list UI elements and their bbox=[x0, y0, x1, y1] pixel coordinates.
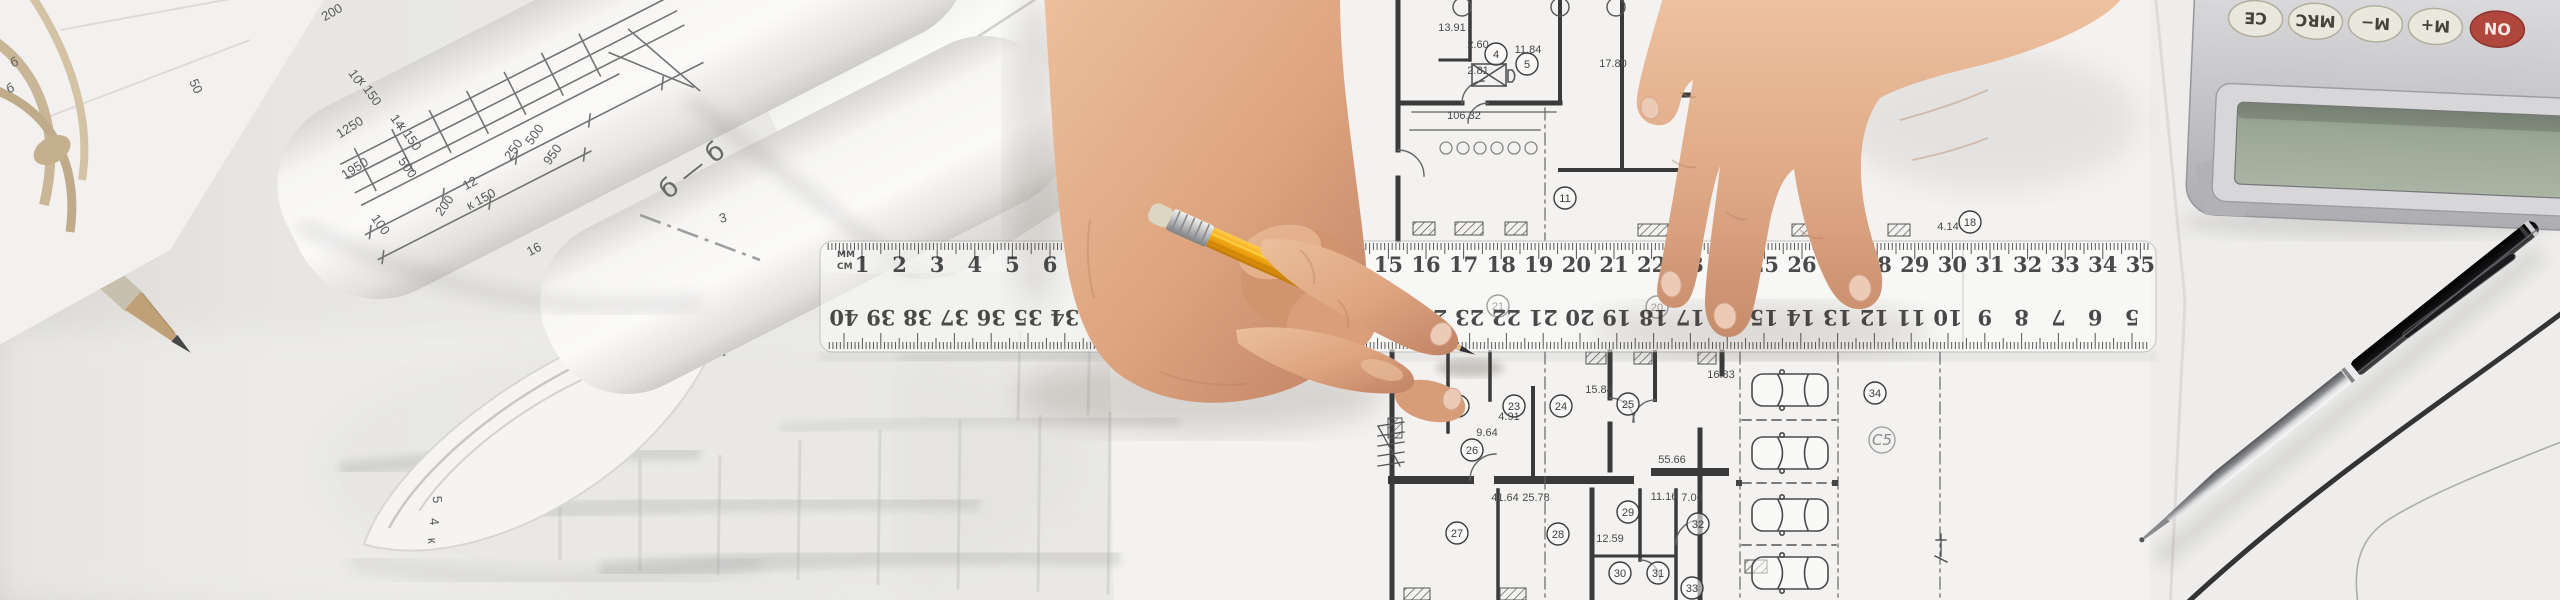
car-body bbox=[1752, 499, 1828, 531]
dimension-label: 12.59 bbox=[1596, 533, 1624, 545]
ruler-number-inverted: 10 bbox=[1933, 305, 1962, 330]
dimension-label: 41.64 bbox=[1491, 492, 1519, 504]
room-number: 18 bbox=[1964, 217, 1976, 229]
dimension-label: 55.66 bbox=[1658, 454, 1686, 466]
button-m-minus-label: M− bbox=[2360, 13, 2390, 33]
ruler-number: 33 bbox=[2051, 252, 2080, 277]
ruler-number-inverted: 8 bbox=[2014, 305, 2029, 330]
ruler-number: 35 bbox=[2126, 252, 2155, 277]
room-number: 28 bbox=[1552, 529, 1564, 541]
ruler-number-inverted: 40 bbox=[829, 305, 858, 330]
ruler-number: 21 bbox=[1599, 252, 1628, 277]
ruler-number-inverted: 9 bbox=[1977, 305, 1992, 330]
room-number: 30 bbox=[1614, 568, 1626, 580]
room-number: 29 bbox=[1622, 507, 1634, 519]
roll-annotation: 5 bbox=[430, 495, 446, 504]
button-ce-label: CE bbox=[2244, 8, 2267, 28]
ruler-number: 19 bbox=[1524, 252, 1553, 277]
roll-annotation: 4 bbox=[427, 517, 443, 526]
car-mirror bbox=[1780, 553, 1784, 557]
ruler-number-inverted: 21 bbox=[1529, 305, 1558, 330]
room-number: 5 bbox=[1524, 59, 1530, 71]
ruler-number-inverted: 38 bbox=[903, 305, 932, 330]
ruler-number-inverted: 36 bbox=[977, 305, 1006, 330]
ruler-number-inverted: 5 bbox=[2125, 305, 2140, 330]
dimension-label: 13.91 bbox=[1438, 22, 1466, 34]
dimension-label: 2.81 bbox=[1467, 65, 1488, 77]
ruler-number: 34 bbox=[2088, 252, 2117, 277]
dimension-label: 17.80 bbox=[1599, 58, 1627, 70]
ruler-shadow bbox=[820, 352, 2156, 361]
ruler-number: 18 bbox=[1487, 252, 1516, 277]
car-body bbox=[1752, 437, 1828, 469]
dimension-label: 4.91 bbox=[1498, 411, 1519, 423]
dimension-label: 7.06 bbox=[1681, 492, 1702, 504]
ruler-number: 4 bbox=[967, 252, 982, 277]
ruler-number: 16 bbox=[1411, 252, 1440, 277]
ruler-number: 29 bbox=[1900, 252, 1929, 277]
room-number: 33 bbox=[1686, 583, 1698, 595]
ruler-number: 15 bbox=[1374, 252, 1403, 277]
ruler-unit-mm: MM bbox=[837, 250, 855, 260]
ruler-unit-cm: CM bbox=[837, 262, 853, 272]
car-mirror bbox=[1780, 433, 1784, 437]
button-m-plus-label: M+ bbox=[2420, 16, 2450, 36]
ruler-number-inverted: 34 bbox=[1050, 305, 1079, 330]
room-number: 27 bbox=[1451, 528, 1463, 540]
room-number: 25 bbox=[1622, 399, 1634, 411]
ruler-number: 2 bbox=[892, 252, 907, 277]
room-number: 31 bbox=[1652, 568, 1664, 580]
ruler-numbers-bottom: 4039383736353433323130292827262524232221… bbox=[829, 305, 2139, 330]
dimension-label: 16.83 bbox=[1707, 369, 1735, 381]
button-mrc-label: MRC bbox=[2295, 10, 2336, 31]
car-mirror bbox=[1780, 531, 1784, 535]
dimension-label: 4.14 bbox=[1937, 221, 1958, 233]
ruler-number: 32 bbox=[2013, 252, 2042, 277]
car-mirror bbox=[1780, 370, 1784, 374]
dimension-label: 9.64 bbox=[1476, 427, 1497, 439]
dimension-label: 11.16 bbox=[1651, 491, 1678, 503]
ruler-number-inverted: 22 bbox=[1492, 305, 1521, 330]
dimension-label: 2.60 bbox=[1467, 39, 1488, 51]
ruler-number-inverted: 6 bbox=[2088, 305, 2103, 330]
ruler-number-inverted: 39 bbox=[866, 305, 895, 330]
calculator: CE MRC M− M+ ON bbox=[2185, 0, 2560, 233]
room-number: 32 bbox=[1692, 519, 1704, 531]
handwritten-mark: C5 bbox=[1872, 431, 1892, 449]
button-on-label: ON bbox=[2483, 19, 2511, 39]
room-number: 11 bbox=[1559, 193, 1570, 205]
dimension-label: 25.78 bbox=[1522, 492, 1550, 504]
car-body bbox=[1752, 557, 1828, 589]
architect-desk-photo: б — б бб5020010к 150125014к 150195050010… bbox=[0, 0, 2560, 600]
room-number: 34 bbox=[1869, 388, 1881, 400]
car-mirror bbox=[1780, 589, 1784, 593]
dimension-label: 106.32 bbox=[1447, 110, 1481, 122]
room-number: 24 bbox=[1555, 401, 1567, 413]
ruler-number-inverted: 37 bbox=[940, 305, 969, 330]
ruler-number: 20 bbox=[1562, 252, 1591, 277]
ruler-number-inverted: 20 bbox=[1565, 305, 1594, 330]
ruler-number: 31 bbox=[1975, 252, 2004, 277]
room-number: 4 bbox=[1493, 49, 1499, 61]
car-icon bbox=[1752, 495, 1828, 535]
ruler-number-inverted: 7 bbox=[2051, 305, 2066, 330]
car-mirror bbox=[1780, 495, 1784, 499]
car-body bbox=[1752, 374, 1828, 406]
car-icon bbox=[1752, 553, 1828, 593]
ruler-number: 17 bbox=[1449, 252, 1478, 277]
car-icon bbox=[1752, 370, 1828, 410]
dimension-label: 11.84 bbox=[1515, 44, 1542, 56]
ruler-number-inverted: 23 bbox=[1455, 305, 1484, 330]
car-mirror bbox=[1780, 469, 1784, 473]
car-icon bbox=[1752, 433, 1828, 473]
dimension-label: 15.84 bbox=[1585, 384, 1613, 396]
ruler-number: 1 bbox=[855, 252, 870, 277]
ruler-number: 26 bbox=[1787, 252, 1816, 277]
ruler-number: 3 bbox=[930, 252, 945, 277]
room-number: 26 bbox=[1466, 445, 1478, 457]
car-mirror bbox=[1780, 406, 1784, 410]
ruler-number: 30 bbox=[1938, 252, 1967, 277]
